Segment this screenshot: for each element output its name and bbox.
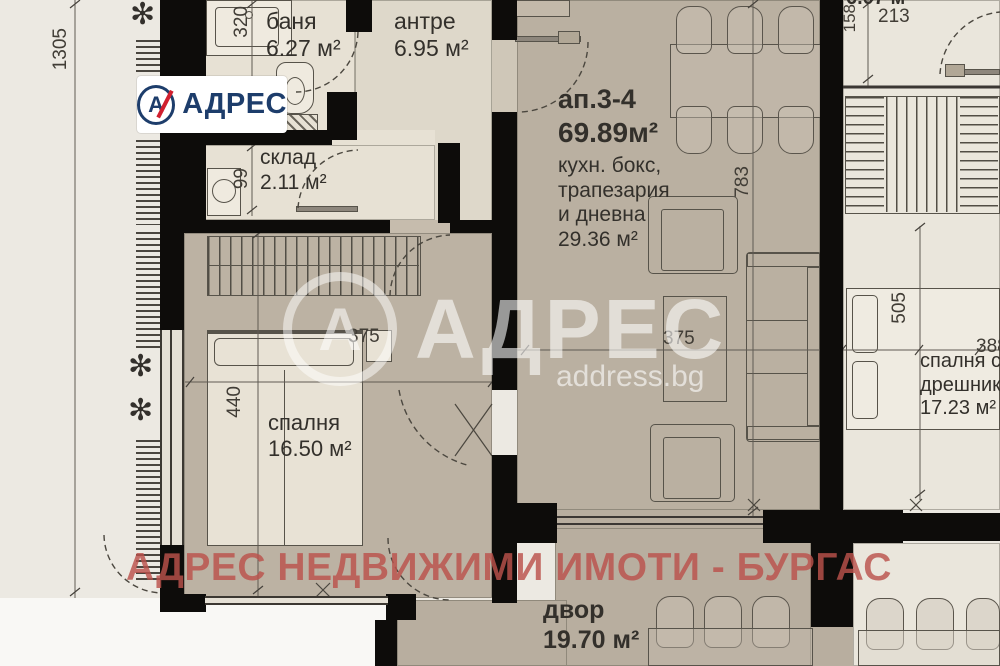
room-name: дрешник [920, 374, 1000, 398]
dim-388: 388 [976, 336, 1000, 358]
adjacent-bedroom-label: спалня с дрешник 17.23 м² [920, 350, 1000, 421]
room-area: 6.95 м² [394, 35, 469, 62]
center-watermark-site: address.bg [556, 360, 704, 394]
wall [346, 0, 372, 32]
unit-living-line: кухн. бокс, [558, 154, 670, 179]
bathroom-label: баня 6.27 м² [266, 8, 341, 62]
logo-brand-text: АДРЕС [182, 88, 287, 121]
room-area: 6.27 м² [266, 35, 341, 62]
unit-living-line: и дневна [558, 203, 670, 228]
hallway-label: антре 6.95 м² [394, 8, 469, 62]
dim-213: 213 [878, 6, 910, 28]
wall [160, 132, 206, 232]
floor-plan-image: ✻ ✻ ✻ [0, 0, 1000, 666]
room-area: 19.70 м² [543, 626, 639, 656]
unit-total-area: 69.89м² [558, 116, 670, 149]
dim-440: 440 [224, 386, 246, 418]
wall [160, 232, 184, 330]
room-name: двор [543, 596, 639, 626]
footer-watermark: АДРЕС НЕДВИЖИМИ ИМОТИ - БУРГАС [126, 546, 892, 590]
yard-label: двор 19.70 м² [543, 596, 639, 655]
room-name: баня [266, 8, 341, 35]
room-name: антре [394, 8, 469, 35]
logo-red-slash-icon [156, 89, 173, 117]
wall [820, 0, 843, 510]
wall [160, 594, 206, 612]
room-area: 17.23 м² [920, 397, 1000, 421]
unit-living-line: трапезария [558, 179, 670, 204]
wall [763, 510, 903, 543]
wall [517, 503, 557, 543]
unit-living-area: 29.36 м² [558, 228, 670, 253]
room-name: спалня [268, 410, 352, 436]
dim-158: 158 [840, 4, 860, 32]
dim-320: 320 [231, 6, 253, 38]
logo-circle-a-icon: А [137, 85, 175, 125]
room-area: 16.50 м² [268, 436, 352, 462]
wall [375, 620, 397, 666]
wall [450, 220, 492, 233]
bedroom-label: спалня 16.50 м² [268, 410, 352, 462]
storage-label: склад 2.11 м² [260, 146, 327, 196]
wall [492, 0, 517, 40]
unit-id: ап.3-4 [558, 84, 670, 116]
window [205, 596, 388, 605]
wall [160, 220, 390, 233]
wall [438, 143, 460, 223]
room-area: 2.11 м² [260, 171, 327, 196]
wall [903, 513, 1000, 541]
wall [386, 594, 416, 620]
brand-circle-a-icon: А [283, 272, 397, 386]
dim-783: 783 [732, 166, 754, 198]
dim-1305: 1305 [50, 28, 72, 70]
dim-505: 505 [889, 292, 911, 324]
agency-logo: А АДРЕС [137, 76, 287, 133]
dim-99: 99 [231, 168, 253, 189]
window [160, 330, 184, 545]
room-name: склад [260, 146, 327, 171]
unit-label: ап.3-4 69.89м² кухн. бокс, трапезария и … [558, 84, 670, 253]
